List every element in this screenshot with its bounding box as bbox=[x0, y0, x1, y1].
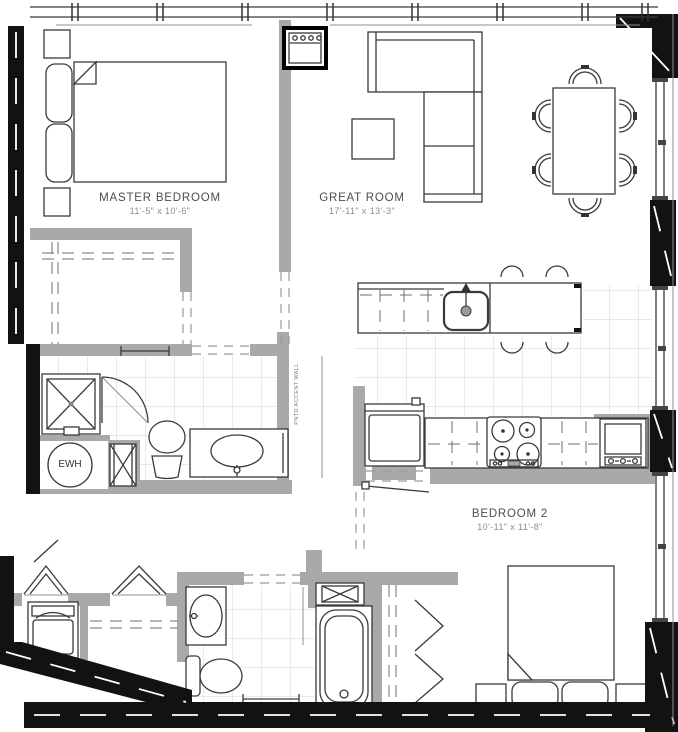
drain bbox=[64, 427, 79, 435]
mechanical-unit bbox=[284, 28, 326, 68]
dining-set bbox=[532, 65, 637, 217]
bedroom2-door bbox=[362, 482, 429, 492]
water-heater-label: EWH bbox=[48, 459, 92, 470]
bathtub bbox=[316, 606, 372, 712]
pillow bbox=[46, 64, 72, 122]
bedroom2-closet-doors bbox=[415, 600, 443, 703]
accent-wall-label: PNTD ACCENT WALL bbox=[294, 360, 300, 428]
sectional-sofa bbox=[368, 32, 482, 202]
vanity-bath2 bbox=[186, 587, 226, 645]
toilet-bath2 bbox=[186, 656, 242, 696]
nightstand bbox=[44, 30, 70, 58]
entry-door-leaf bbox=[34, 540, 58, 562]
nightstand bbox=[44, 188, 70, 216]
cooktop bbox=[487, 417, 541, 467]
pillow bbox=[46, 124, 72, 182]
refrigerator bbox=[365, 398, 424, 466]
vanity-master bbox=[190, 429, 288, 477]
shower bbox=[42, 374, 100, 435]
bed-2 bbox=[476, 566, 646, 708]
tub-niche bbox=[316, 583, 364, 605]
dining-table bbox=[553, 88, 615, 194]
kitchen-island bbox=[358, 283, 581, 333]
bed-icon bbox=[508, 566, 614, 680]
floor-plan: MASTER BEDROOM 11'-5" x 10'-6" GREAT ROO… bbox=[0, 0, 678, 732]
entry-bifold-doors bbox=[24, 566, 166, 595]
bed-icon bbox=[74, 62, 226, 182]
utility-shaft bbox=[110, 444, 136, 486]
master-bed bbox=[44, 30, 226, 216]
coffee-table bbox=[352, 119, 394, 159]
wall-oven bbox=[600, 419, 646, 467]
floor-plan-drawing bbox=[0, 0, 678, 732]
